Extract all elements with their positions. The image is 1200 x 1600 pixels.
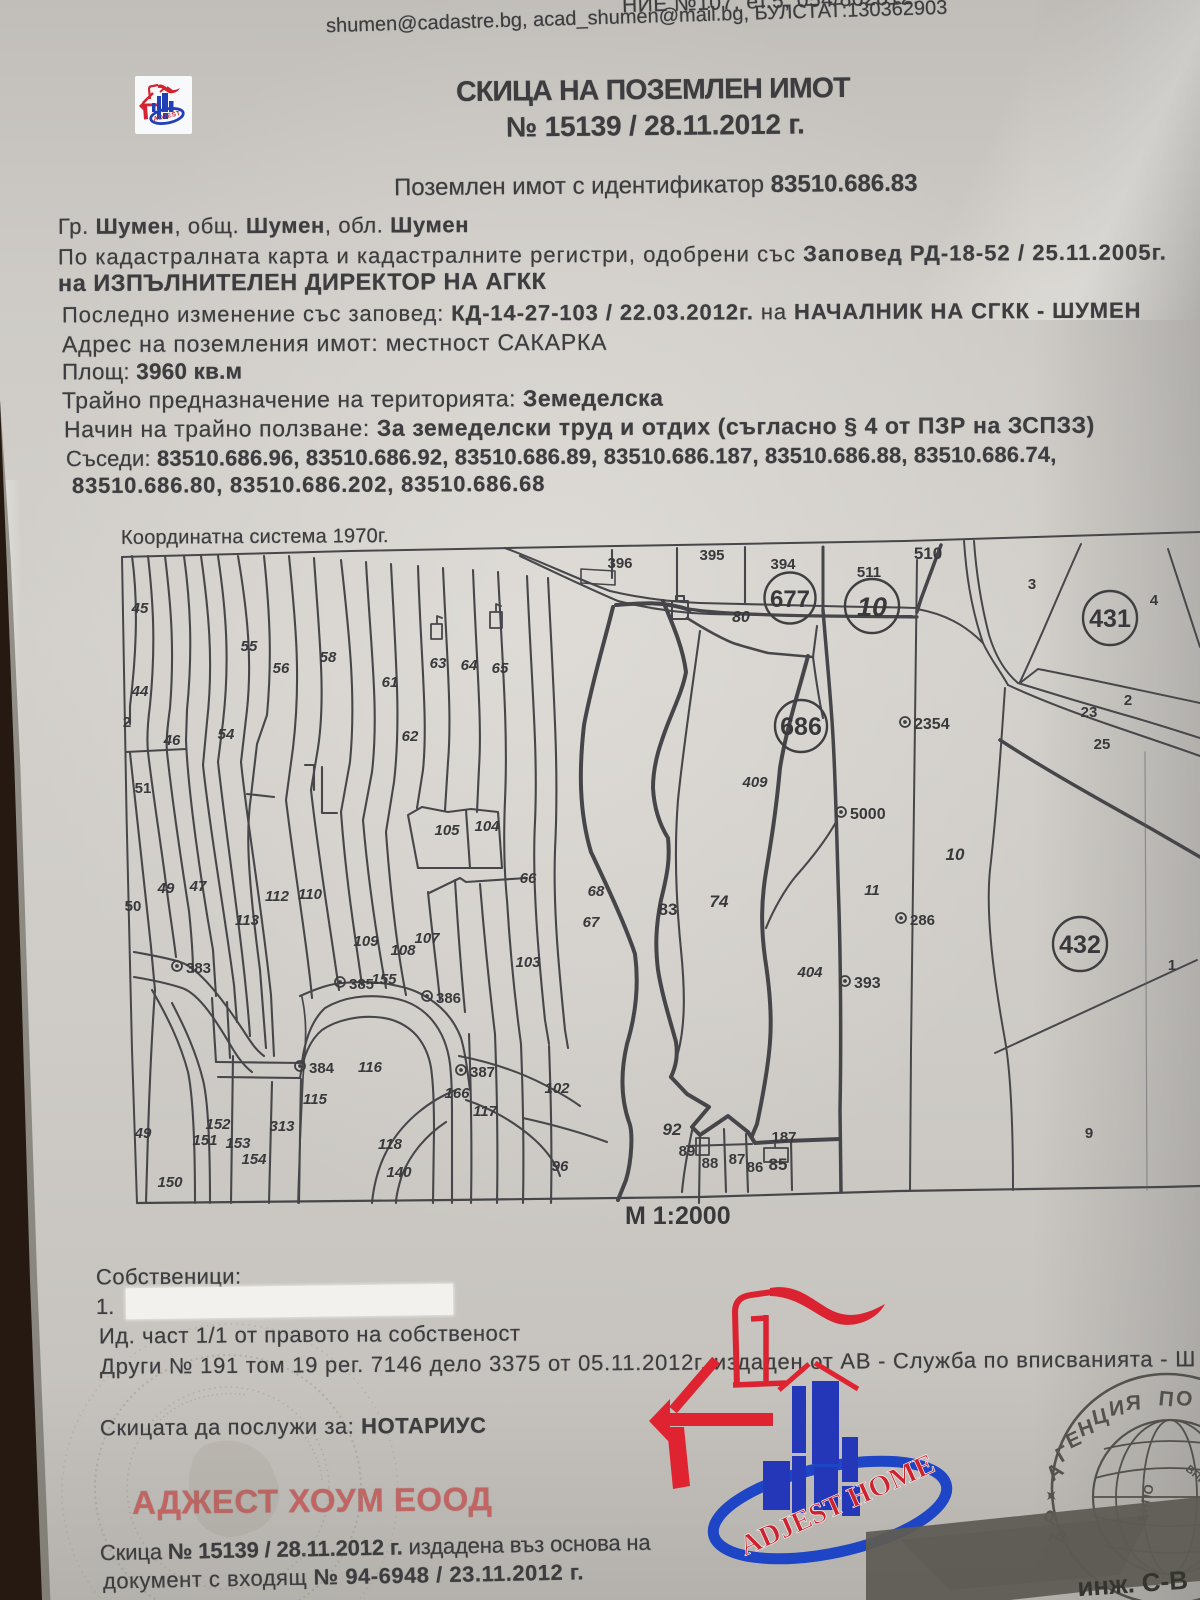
svg-text:О: О <box>1174 1386 1194 1411</box>
svg-text:П: П <box>1157 1387 1174 1411</box>
svg-text:И: И <box>1108 1396 1126 1421</box>
svg-text:Я: Я <box>1125 1391 1141 1415</box>
svg-text:✦: ✦ <box>1041 1486 1062 1507</box>
